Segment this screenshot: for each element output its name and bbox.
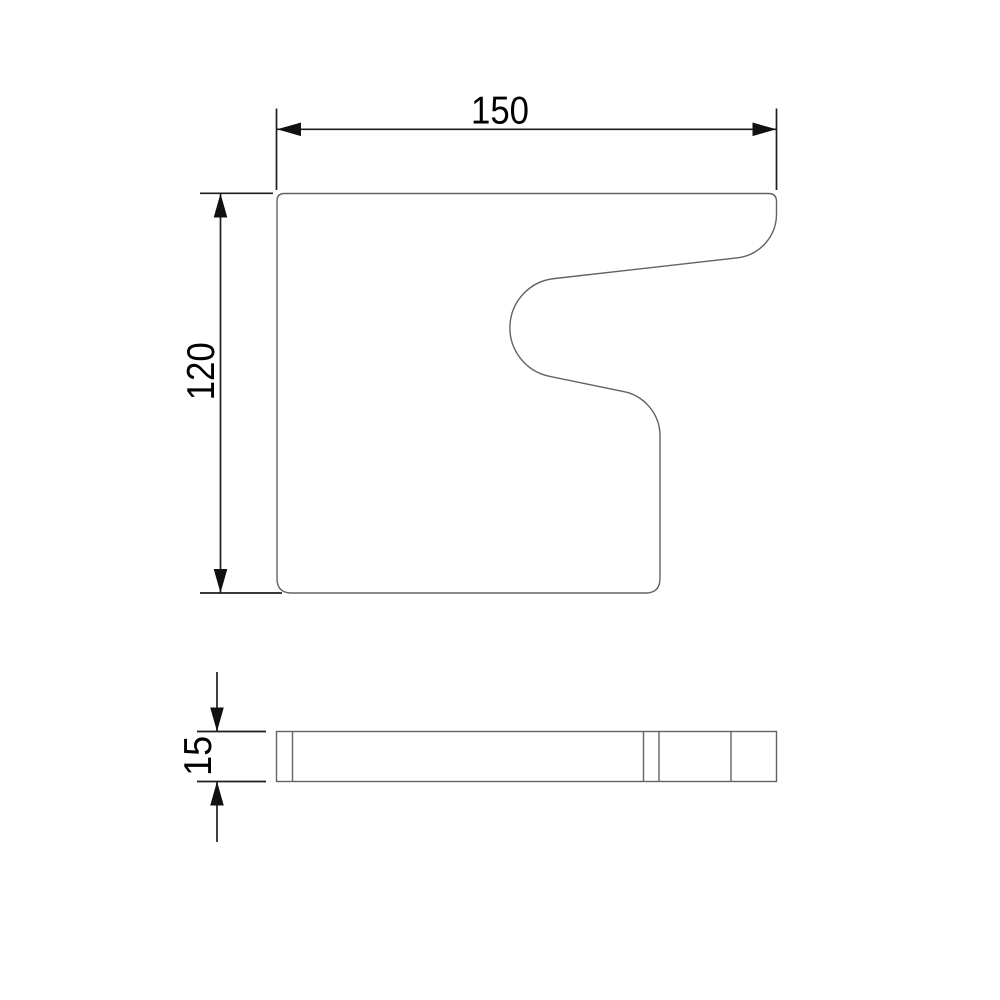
svg-text:120: 120 [180,342,223,400]
svg-text:150: 150 [471,90,529,133]
svg-text:15: 15 [177,736,220,776]
